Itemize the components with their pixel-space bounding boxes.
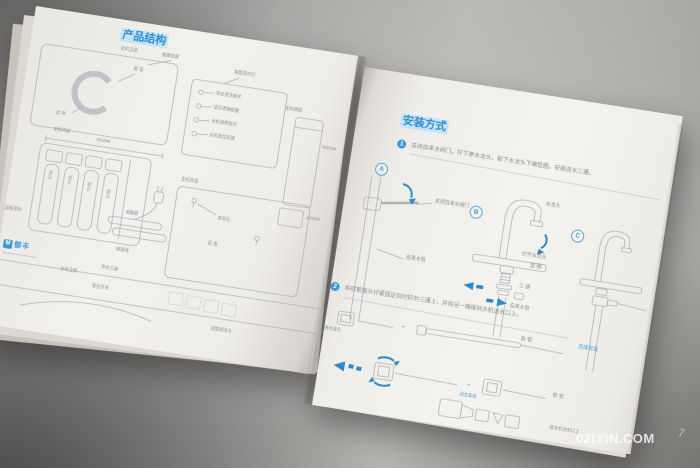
watermark: 02IYIN.COM [576,431,655,446]
page-left-product-structure: 产品结构 主机正面 旋 钮 出 水 触摸按键 智能指示灯 净水清洗模式 滤芯更换… [0,6,358,374]
filter-label: 滤芯 [105,189,110,199]
installed-tee [592,296,608,307]
show-through-ghosts [168,292,237,317]
dial-glyph [72,71,110,114]
assembled-joint [438,399,462,419]
filter-label: 滤芯 [67,175,72,185]
photo-scene: 产品结构 主机正面 旋 钮 出 水 触摸按键 智能指示灯 净水清洗模式 滤芯更换… [0,0,700,468]
washer-part [496,284,511,290]
power-plug-glyph [153,191,164,203]
tee-part [514,293,524,300]
plus-sign: + [467,382,471,388]
hose-joint-rotating [373,362,394,381]
watermark-mark: 7 [676,425,686,440]
brand-mark-icon: M [3,238,13,248]
hose [425,329,521,349]
page-right-installation: 安装方式 1 关闭自来水阀门，拧下原水龙头，取下水龙头下端垫圈，安装进水三通。 … [312,67,683,454]
manual-booklet: 产品结构 主机正面 旋 钮 出 水 触摸按键 智能指示灯 净水清洗模式 滤芯更换… [0,6,684,458]
plus-sign: + [401,325,405,331]
left-page-line-art [0,6,358,374]
back-panel-outline [164,186,310,297]
filter-label: 滤芯 [48,170,53,180]
filter-label: 滤芯 [86,182,91,192]
valve-body [363,197,382,211]
hose-joint [337,311,355,326]
right-page-line-art [312,67,683,454]
